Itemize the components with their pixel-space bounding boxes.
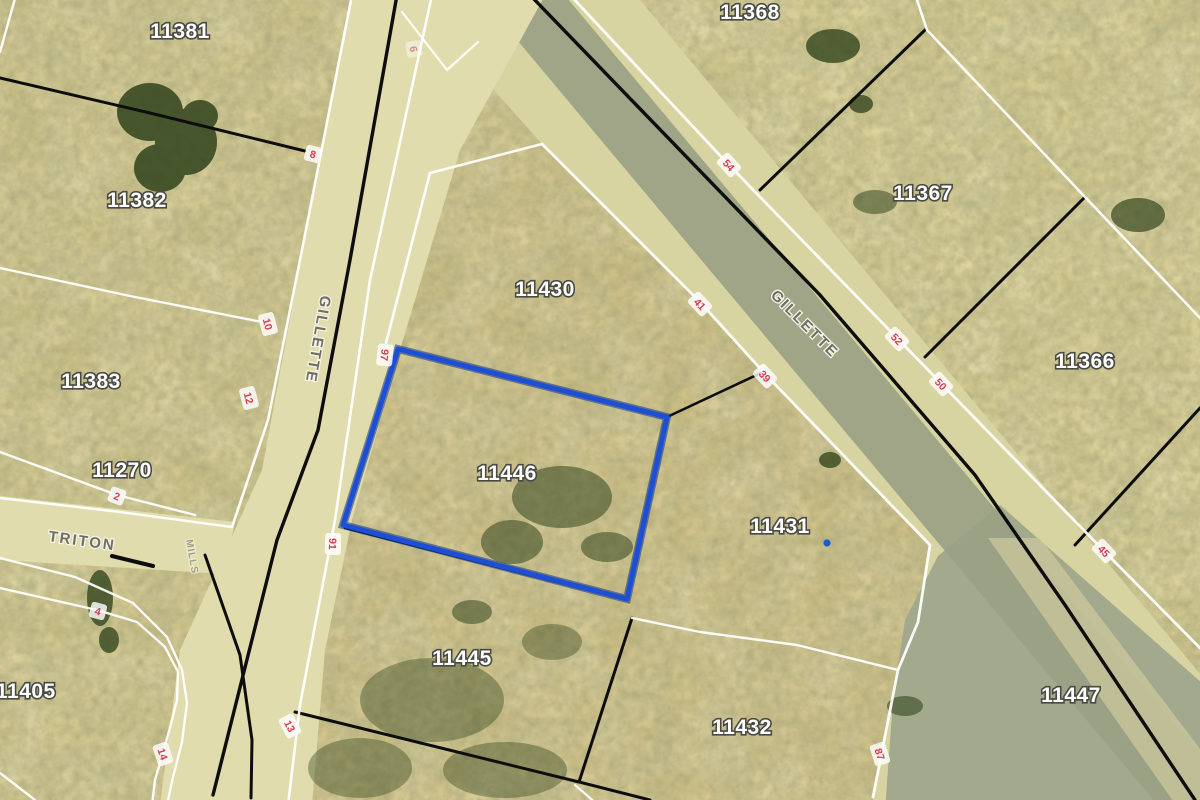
parcel-label-11432: 11432 <box>712 716 772 739</box>
parcel-label-11431: 11431 <box>750 515 810 538</box>
parcel-label-11445: 11445 <box>432 647 492 670</box>
marker-91: 91 <box>325 533 342 556</box>
shrub-11366 <box>1111 198 1165 232</box>
parcel-label-11381: 11381 <box>150 20 210 43</box>
tree-11431 <box>819 452 841 468</box>
parcel-label-11382: 11382 <box>107 189 167 212</box>
blue-point-11431 <box>823 539 830 546</box>
parcel-label-11383: 11383 <box>61 370 121 393</box>
marker-6: 6 <box>405 40 424 59</box>
svg-text:97: 97 <box>377 348 390 361</box>
aerial-map-canvas: 8 10 12 2 4 14 13 97 91 6 54 52 50 45 41… <box>0 0 1200 800</box>
svg-text:91: 91 <box>326 538 338 550</box>
parcel-label-11270: 11270 <box>92 459 152 482</box>
parcel-label-11366: 11366 <box>1055 350 1115 373</box>
shrub-11367 <box>853 190 897 214</box>
parcel-label-11446: 11446 <box>477 462 537 485</box>
parcel-label-11430: 11430 <box>515 278 575 301</box>
parcel-map: 8 10 12 2 4 14 13 97 91 6 54 52 50 45 41… <box>0 0 1200 800</box>
parcel-label-11447: 11447 <box>1041 684 1101 707</box>
parcel-label-11367: 11367 <box>893 182 953 205</box>
parcel-label-11368: 11368 <box>720 1 780 24</box>
parcel-label-11405: 11405 <box>0 680 56 703</box>
marker-97: 97 <box>376 343 394 367</box>
